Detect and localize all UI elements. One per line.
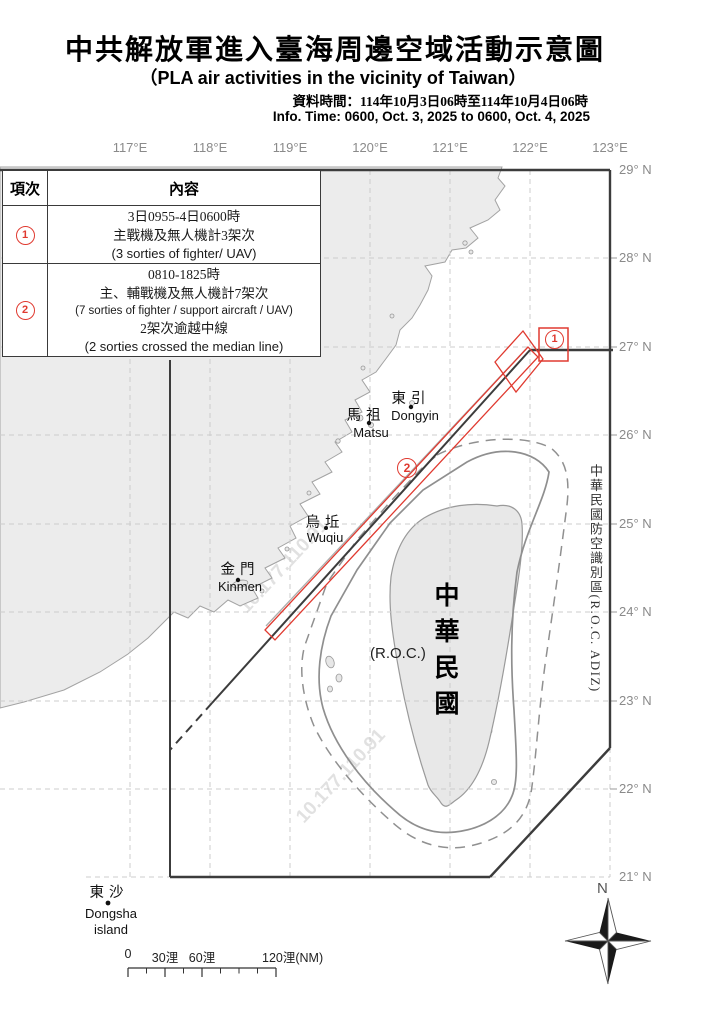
- col-header-content: 內容: [48, 171, 321, 206]
- matsu-label-en: Matsu: [343, 425, 399, 440]
- pla-activity-map-page: 10.177.110.91 10.177.110.91 10.177.110.9…: [0, 0, 709, 1024]
- map-annotation-1-badge: 1: [545, 330, 564, 349]
- matsu-label-zh: 馬祖: [341, 404, 391, 425]
- lat-label-27n: 27° N: [619, 339, 679, 354]
- col-header-item: 項次: [3, 171, 48, 206]
- wuqiu-label-en: Wuqiu: [302, 530, 348, 545]
- kinmen-label-zh: 金門: [215, 558, 265, 579]
- scale-label-120: 120浬(NM): [262, 947, 342, 966]
- adiz-label: 中華民國防空識別區(R.O.C. ADIZ): [586, 464, 605, 709]
- lat-label-21n: 21° N: [619, 869, 679, 884]
- table-header-row: 項次 內容: [3, 171, 321, 206]
- kinmen-label-en: Kinmen: [211, 579, 269, 594]
- roc-label: (R.O.C.): [370, 645, 426, 662]
- info-time-zh: 資料時間：114年10月3日06時至114年10月4日06時: [0, 90, 588, 110]
- compass-north-label: N: [597, 880, 608, 897]
- circled-2-badge: 2: [16, 301, 35, 320]
- taiwan-label: 中華民國: [426, 582, 462, 742]
- page-title: 中共解放軍進入臺海周邊空域活動示意圖: [0, 28, 670, 68]
- scale-label-0: 0: [121, 947, 135, 961]
- activity-legend-table: 項次 內容 1 3日0955-4日0600時 主戰機及無人機計3架次 (3 so…: [2, 170, 321, 357]
- row1-number-cell: 1: [3, 206, 48, 264]
- row1-line-zh: 主戰機及無人機計3架次: [50, 226, 318, 245]
- row2-line-en: (7 sorties of fighter / support aircraft…: [50, 303, 318, 319]
- dongyin-label-zh: 東引: [386, 387, 436, 408]
- lat-label-25n: 25° N: [619, 516, 679, 531]
- scale-label-30: 30浬: [150, 947, 180, 966]
- lon-label-123e: 123°E: [583, 140, 637, 155]
- lat-label-24n: 24° N: [619, 604, 679, 619]
- lat-label-22n: 22° N: [619, 781, 679, 796]
- page-subtitle: （PLA air activities in the vicinity of T…: [0, 64, 666, 90]
- scale-label-60: 60浬: [187, 947, 217, 966]
- lon-label-119e: 119°E: [263, 140, 317, 155]
- row2-content-cell: 0810-1825時 主、輔戰機及無人機計7架次 (7 sorties of f…: [48, 264, 321, 357]
- lon-label-118e: 118°E: [183, 140, 237, 155]
- lon-label-122e: 122°E: [503, 140, 557, 155]
- table-row: 2 0810-1825時 主、輔戰機及無人機計7架次 (7 sorties of…: [3, 264, 321, 357]
- dongsha-label-en2: island: [80, 922, 142, 937]
- row2-number-cell: 2: [3, 264, 48, 357]
- row1-content-cell: 3日0955-4日0600時 主戰機及無人機計3架次 (3 sorties of…: [48, 206, 321, 264]
- map-annotation-2-badge: 2: [397, 458, 417, 478]
- lat-label-29n: 29° N: [619, 162, 679, 177]
- lon-label-120e: 120°E: [343, 140, 397, 155]
- info-time-en: Info. Time: 0600, Oct. 3, 2025 to 0600, …: [0, 109, 590, 124]
- watermark-text: 10.177.110.91: [292, 725, 390, 828]
- row2-line-time: 0810-1825時: [50, 265, 318, 284]
- dongsha-label-en: Dongsha: [80, 906, 142, 921]
- row2-line-zh: 主、輔戰機及無人機計7架次: [50, 284, 318, 303]
- row2-line-zh2: 2架次逾越中線: [50, 319, 318, 338]
- lon-label-117e: 117°E: [103, 140, 157, 155]
- row1-line-en: (3 sorties of fighter/ UAV): [50, 245, 318, 262]
- lat-label-26n: 26° N: [619, 427, 679, 442]
- circled-1-badge: 1: [16, 226, 35, 245]
- dongyin-label-en: Dongyin: [384, 408, 446, 423]
- lon-label-121e: 121°E: [423, 140, 477, 155]
- scale-bar: [128, 968, 276, 977]
- table-row: 1 3日0955-4日0600時 主戰機及無人機計3架次 (3 sorties …: [3, 206, 321, 264]
- row1-line-time: 3日0955-4日0600時: [50, 207, 318, 226]
- lat-label-23n: 23° N: [619, 693, 679, 708]
- compass-rose: [565, 898, 651, 984]
- row2-line-en2: (2 sorties crossed the median line): [50, 338, 318, 355]
- lat-label-28n: 28° N: [619, 250, 679, 265]
- wuqiu-label-zh: 烏坵: [300, 511, 350, 532]
- dongsha-label-zh: 東沙: [84, 881, 134, 902]
